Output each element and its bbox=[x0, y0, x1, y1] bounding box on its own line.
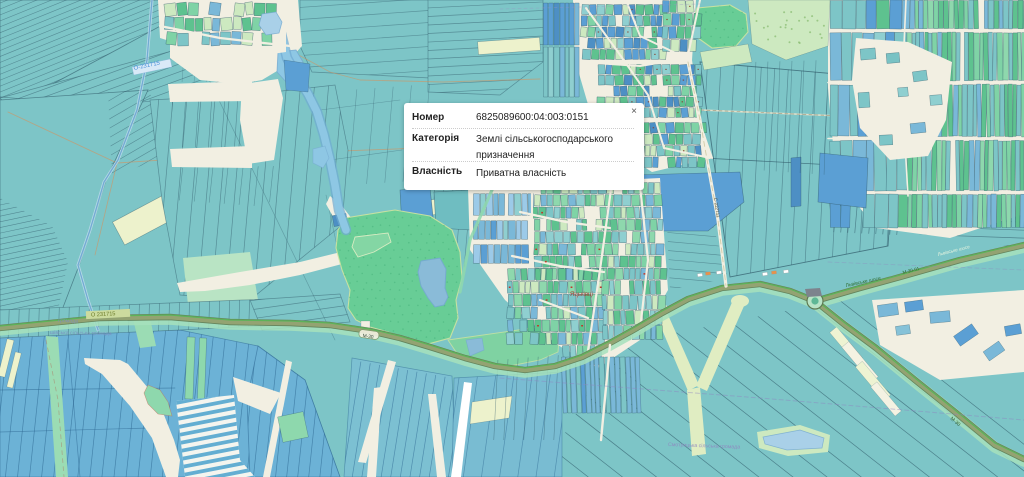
svg-text:Яцьківці: Яцьківці bbox=[570, 292, 593, 298]
svg-text:шівська сільська громада: шівська сільська громада bbox=[50, 330, 112, 337]
svg-text:О 231715: О 231715 bbox=[91, 311, 116, 318]
svg-text:громада: громада bbox=[58, 318, 78, 325]
